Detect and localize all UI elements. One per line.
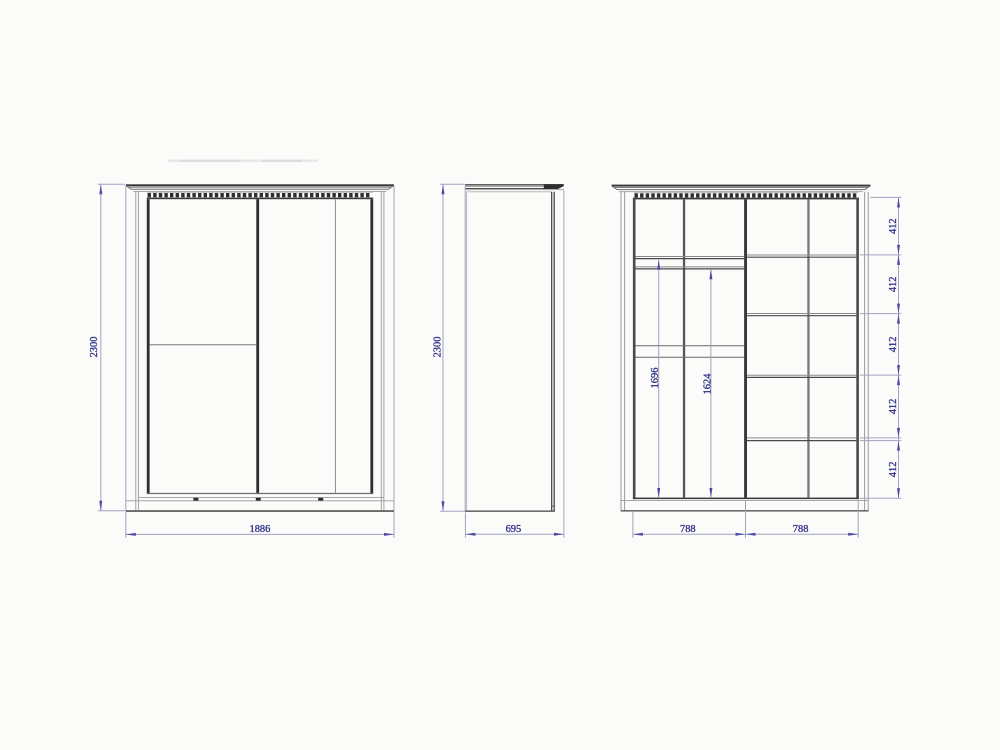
svg-text:1624: 1624 xyxy=(703,373,714,395)
svg-text:1886: 1886 xyxy=(250,524,271,535)
svg-text:412: 412 xyxy=(888,399,899,415)
svg-text:788: 788 xyxy=(793,524,809,535)
svg-text:412: 412 xyxy=(888,218,899,234)
svg-text:788: 788 xyxy=(680,524,696,535)
svg-text:1696: 1696 xyxy=(650,368,661,389)
svg-text:412: 412 xyxy=(888,277,899,293)
svg-text:695: 695 xyxy=(506,524,522,535)
svg-text:2300: 2300 xyxy=(89,337,100,358)
svg-text:412: 412 xyxy=(888,462,899,478)
svg-text:412: 412 xyxy=(888,337,899,353)
svg-text:2300: 2300 xyxy=(433,337,444,358)
